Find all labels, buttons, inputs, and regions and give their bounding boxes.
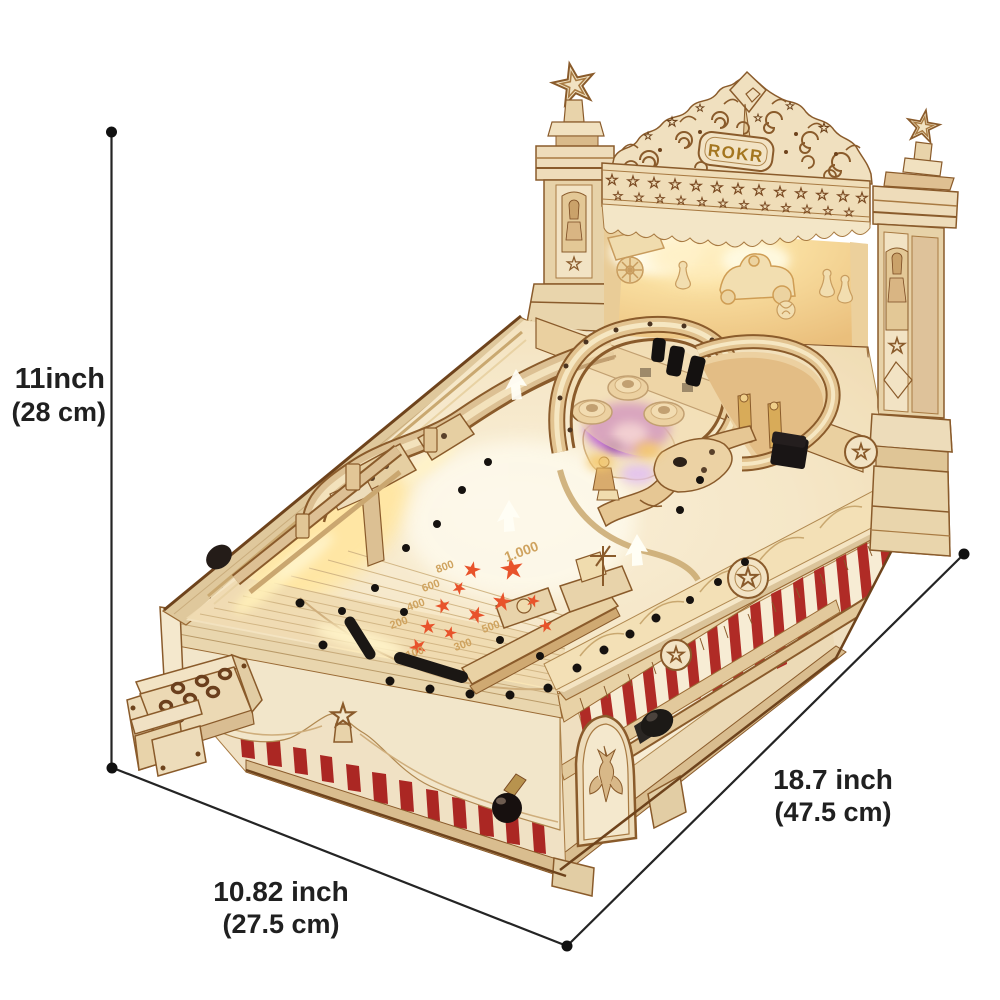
svg-text:(47.5 cm): (47.5 cm)	[774, 797, 891, 827]
svg-text:(28 cm): (28 cm)	[11, 397, 106, 427]
svg-text:18.7 inch: 18.7 inch	[773, 764, 893, 795]
svg-text:(27.5 cm): (27.5 cm)	[222, 909, 339, 939]
svg-text:10.82 inch: 10.82 inch	[213, 876, 348, 907]
svg-text:11inch: 11inch	[15, 363, 105, 395]
